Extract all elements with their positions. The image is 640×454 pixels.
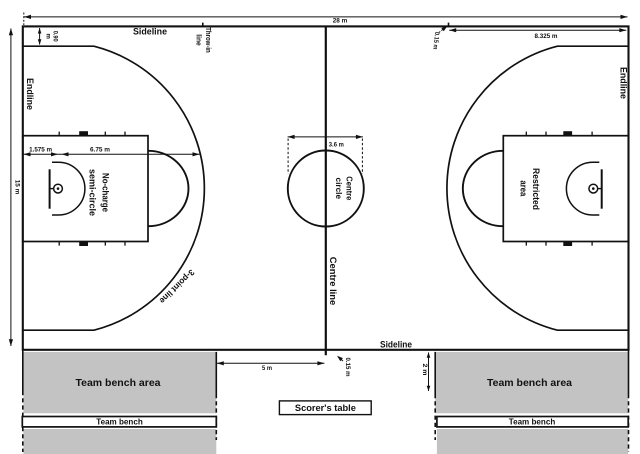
svg-text:Throw-in: Throw-in xyxy=(204,27,211,53)
svg-text:No-charge: No-charge xyxy=(100,173,110,212)
svg-text:8.325 m: 8.325 m xyxy=(535,33,558,40)
svg-text:5 m: 5 m xyxy=(262,365,272,372)
svg-text:6.75 m: 6.75 m xyxy=(90,148,110,154)
svg-text:2 m: 2 m xyxy=(421,364,428,376)
svg-text:Team bench area: Team bench area xyxy=(487,378,572,389)
svg-text:Sideline: Sideline xyxy=(380,340,412,350)
svg-text:Centre: Centre xyxy=(344,176,354,200)
svg-text:area: area xyxy=(519,180,529,197)
svg-text:15 m: 15 m xyxy=(14,180,21,195)
svg-text:Team bench: Team bench xyxy=(96,417,143,427)
svg-text:semi-circle: semi-circle xyxy=(88,169,98,216)
svg-text:28 m: 28 m xyxy=(333,18,348,25)
svg-text:Scorer's table: Scorer's table xyxy=(295,403,356,414)
svg-text:Team bench: Team bench xyxy=(509,417,556,427)
svg-text:0.15 m: 0.15 m xyxy=(344,358,351,377)
svg-text:3.6 m: 3.6 m xyxy=(329,141,344,148)
svg-text:Sideline: Sideline xyxy=(133,27,167,37)
svg-text:m: m xyxy=(44,34,50,39)
svg-text:1.575 m: 1.575 m xyxy=(29,148,52,154)
svg-text:Endline: Endline xyxy=(25,78,35,110)
svg-text:0.90: 0.90 xyxy=(52,31,58,43)
svg-text:Restricted: Restricted xyxy=(531,168,541,210)
svg-text:line: line xyxy=(194,34,201,46)
svg-text:Centre line: Centre line xyxy=(328,257,338,306)
svg-text:circle: circle xyxy=(334,178,344,200)
svg-text:Endline: Endline xyxy=(619,67,629,99)
svg-text:Team bench area: Team bench area xyxy=(76,378,161,389)
